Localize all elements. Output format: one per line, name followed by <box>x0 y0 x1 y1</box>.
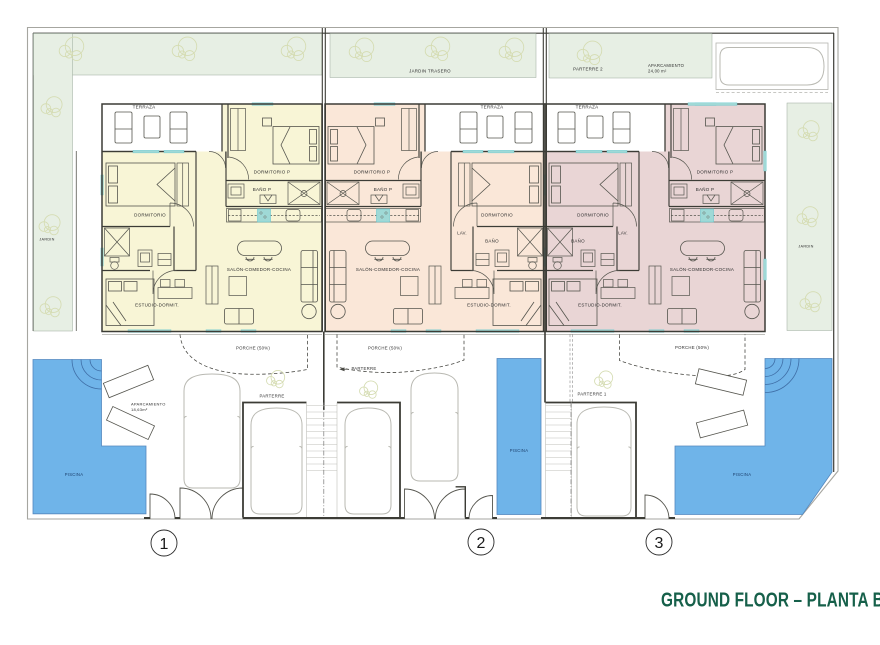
svg-text:TERRAZA: TERRAZA <box>576 105 599 110</box>
svg-text:18,63m²: 18,63m² <box>131 407 148 412</box>
svg-text:PISCINA: PISCINA <box>510 448 529 453</box>
svg-text:SALÓN-COMEDOR-COCINA: SALÓN-COMEDOR-COCINA <box>227 266 291 272</box>
svg-text:JARDIN: JARDIN <box>39 238 54 242</box>
svg-text:PARTERRE 2: PARTERRE 2 <box>573 67 603 72</box>
svg-text:TERRAZA: TERRAZA <box>133 105 156 110</box>
svg-text:ESTUDIO-DORMIT.: ESTUDIO-DORMIT. <box>467 303 511 308</box>
svg-text:24,00 m²: 24,00 m² <box>648 69 667 74</box>
svg-text:1: 1 <box>160 536 169 553</box>
svg-text:PORCHE (50%): PORCHE (50%) <box>236 346 270 351</box>
svg-text:DORMITORIO P: DORMITORIO P <box>354 170 390 175</box>
svg-text:JARDIN TRASERO: JARDIN TRASERO <box>409 69 451 74</box>
svg-text:JARDIN: JARDIN <box>798 245 813 249</box>
svg-text:PORCHE (50%): PORCHE (50%) <box>675 345 709 350</box>
svg-text:DORMITORIO: DORMITORIO <box>134 213 166 218</box>
svg-text:3: 3 <box>655 535 664 552</box>
svg-text:2: 2 <box>477 535 486 552</box>
svg-text:GROUND FLOOR – PLANTA BAJA: GROUND FLOOR – PLANTA BAJA <box>661 588 880 611</box>
svg-text:BAÑO P: BAÑO P <box>696 186 715 192</box>
svg-text:DORMITORIO: DORMITORIO <box>577 213 609 218</box>
svg-text:DORMITORIO P: DORMITORIO P <box>697 170 733 175</box>
svg-text:TERRAZA: TERRAZA <box>481 105 504 110</box>
svg-text:DORMITORIO P: DORMITORIO P <box>254 170 290 175</box>
svg-text:PARTERRE 1: PARTERRE 1 <box>577 392 606 397</box>
svg-text:BAÑO P: BAÑO P <box>374 186 393 192</box>
svg-text:BAÑO: BAÑO <box>485 238 499 244</box>
svg-text:APARCAMIENTO: APARCAMIENTO <box>131 402 166 407</box>
svg-text:PARTERRE: PARTERRE <box>351 366 376 371</box>
svg-text:BAÑO P: BAÑO P <box>253 186 272 192</box>
svg-text:BAÑO: BAÑO <box>571 238 585 244</box>
svg-text:PISCINA: PISCINA <box>733 472 752 477</box>
svg-text:PISCINA: PISCINA <box>65 472 84 477</box>
svg-text:ESTUDIO-DORMIT.: ESTUDIO-DORMIT. <box>135 303 179 308</box>
svg-text:SALÓN-COMEDOR-COCINA: SALÓN-COMEDOR-COCINA <box>356 266 420 272</box>
svg-text:PORCHE (50%): PORCHE (50%) <box>368 346 402 351</box>
svg-text:PARTERRE: PARTERRE <box>259 394 284 399</box>
svg-text:LAV.: LAV. <box>457 231 467 236</box>
svg-text:APARCAMIENTO: APARCAMIENTO <box>648 63 685 68</box>
svg-text:DORMITORIO: DORMITORIO <box>481 213 513 218</box>
svg-text:ESTUDIO-DORMIT.: ESTUDIO-DORMIT. <box>578 303 622 308</box>
svg-text:LAV.: LAV. <box>618 231 628 236</box>
svg-text:SALÓN-COMEDOR-COCINA: SALÓN-COMEDOR-COCINA <box>670 266 734 272</box>
